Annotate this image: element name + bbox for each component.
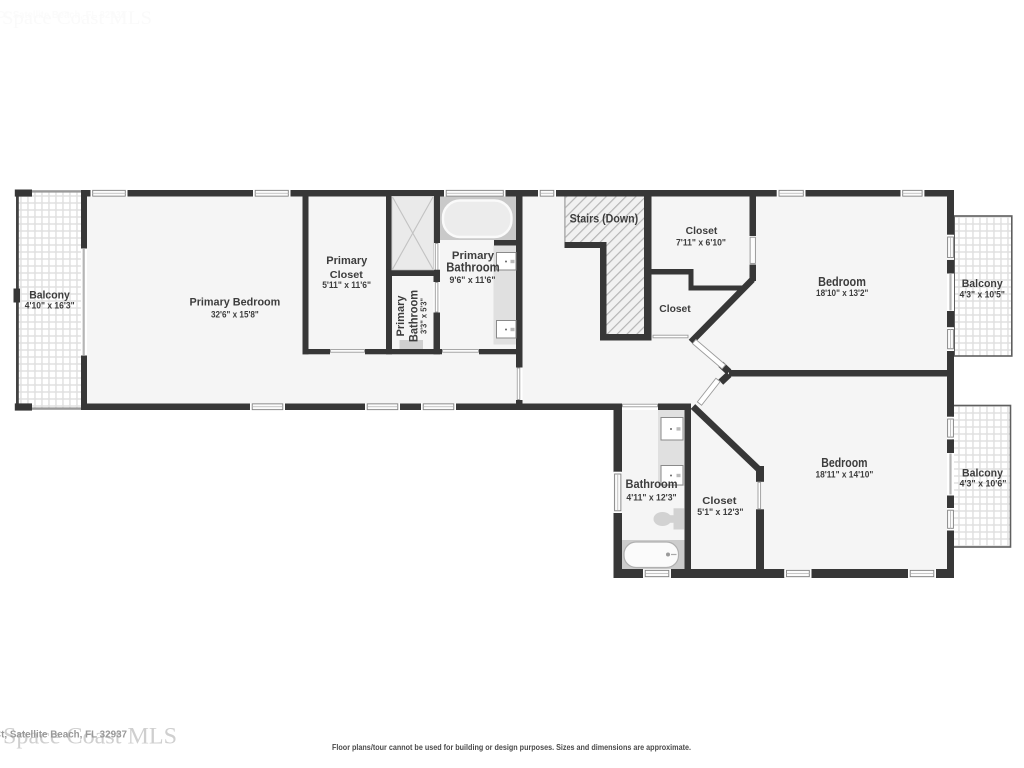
svg-text:Bathroom: Bathroom [626,477,678,491]
svg-text:Primary Bedroom: Primary Bedroom [190,297,281,309]
svg-text:3'3" x 5'3": 3'3" x 5'3" [419,298,429,334]
svg-text:5'11" x 11'6": 5'11" x 11'6" [322,280,371,290]
svg-text:Floor plans/tour cannot be use: Floor plans/tour cannot be used for buil… [332,743,691,752]
svg-text:Stairs (Down): Stairs (Down) [570,214,639,226]
svg-text:Primary: Primary [326,255,367,267]
svg-text:Closet: Closet [702,495,737,507]
svg-text:Bedroom: Bedroom [821,455,867,470]
svg-text:32'6" x 15'8": 32'6" x 15'8" [211,309,259,319]
svg-text:Balcony: Balcony [962,278,1003,290]
svg-text:4'3" x 10'6": 4'3" x 10'6" [960,479,1007,489]
svg-text:7'11" x 6'10": 7'11" x 6'10" [676,238,726,248]
svg-text:Closet: Closet [659,304,691,315]
svg-text:4'3" x 10'5": 4'3" x 10'5" [960,290,1005,300]
svg-text:18'11" x 14'10": 18'11" x 14'10" [816,470,874,480]
svg-text:Closet: Closet [686,226,718,237]
svg-text:Bedroom: Bedroom [818,274,866,289]
svg-text:9'6" x 11'6": 9'6" x 11'6" [450,275,496,285]
svg-text:4'11" x 12'3": 4'11" x 12'3" [626,492,676,502]
svg-text:Bathroom: Bathroom [446,260,500,274]
svg-text:4'10" x 16'3": 4'10" x 16'3" [25,301,75,311]
svg-text:5'1" x 12'3": 5'1" x 12'3" [697,507,743,517]
svg-text:nt Ct, Satellite Beach, FL 329: nt Ct, Satellite Beach, FL 32937 [0,10,126,21]
svg-text:Primary: Primary [395,296,407,337]
svg-text:18'10" x 13'2": 18'10" x 13'2" [816,288,868,298]
svg-text:Balcony: Balcony [962,467,1003,479]
svg-text:nt Ct, Satellite Beach, FL 329: nt Ct, Satellite Beach, FL 32937 [0,730,127,741]
